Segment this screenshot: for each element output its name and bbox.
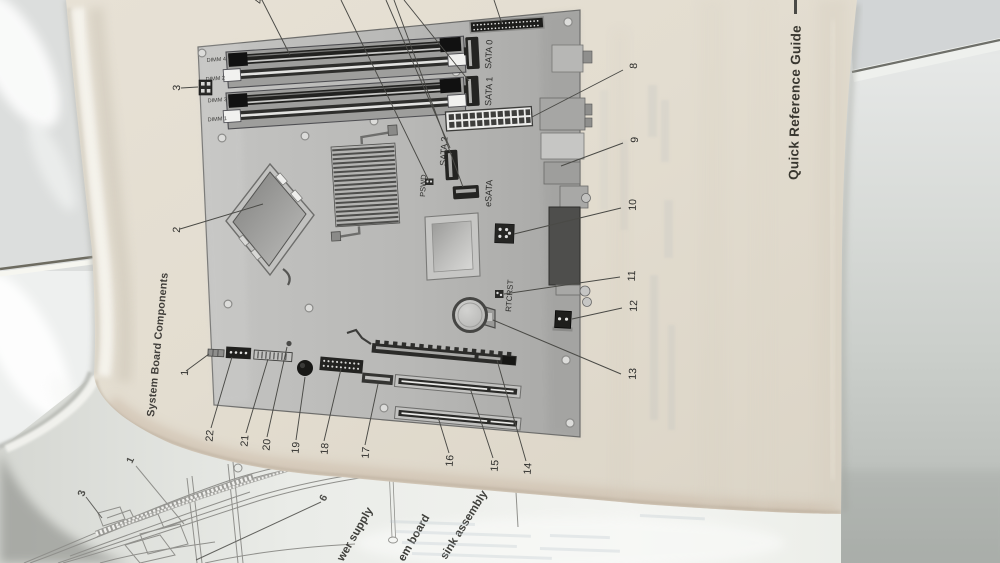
- svg-text:15: 15: [489, 459, 502, 472]
- svg-text:10: 10: [627, 199, 639, 211]
- svg-text:eSATA: eSATA: [483, 179, 494, 207]
- svg-text:18: 18: [319, 442, 332, 455]
- svg-text:11: 11: [626, 270, 638, 281]
- svg-text:12: 12: [628, 300, 640, 312]
- svg-text:17: 17: [360, 446, 373, 459]
- svg-text:4: 4: [253, 0, 265, 4]
- svg-text:21: 21: [239, 434, 252, 447]
- svg-text:3: 3: [171, 84, 183, 91]
- svg-text:20: 20: [261, 438, 274, 451]
- svg-text:SATA 1: SATA 1: [483, 76, 495, 106]
- svg-text:1: 1: [179, 369, 191, 376]
- svg-text:16: 16: [444, 454, 457, 467]
- svg-text:19: 19: [290, 441, 303, 454]
- svg-text:Quick Reference Guide: Quick Reference Guide: [786, 25, 804, 180]
- svg-text:22: 22: [204, 429, 217, 442]
- svg-text:SATA 2: SATA 2: [438, 136, 450, 166]
- svg-text:14: 14: [522, 462, 535, 475]
- svg-text:9: 9: [629, 137, 641, 143]
- svg-text:2: 2: [171, 226, 183, 233]
- svg-text:SATA 0: SATA 0: [483, 39, 495, 69]
- svg-text:8: 8: [628, 63, 640, 69]
- svg-text:13: 13: [627, 368, 639, 380]
